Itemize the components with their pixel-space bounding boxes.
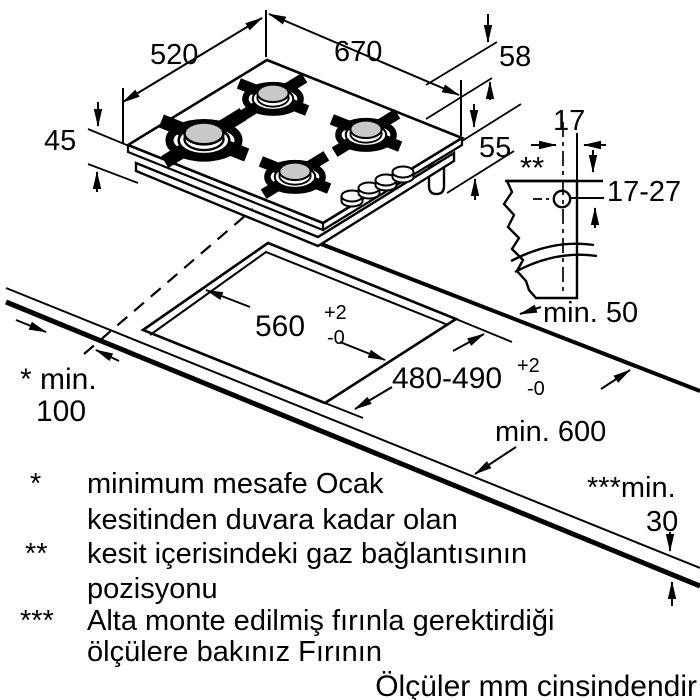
- panel-thickness-label: ***min.: [587, 472, 676, 504]
- worktop-depth-label: min. 600: [495, 416, 606, 448]
- gas-connection-detail: 17 ** 17-27: [504, 105, 681, 298]
- gas-vertical-dimension: 17-27: [607, 176, 681, 208]
- cutout-depth-tol-plus: +2: [517, 355, 540, 377]
- gas-horizontal-dimension: 17: [553, 105, 585, 137]
- hob-isometric-view: [128, 60, 462, 246]
- footnote-1-line1: minimum mesafe Ocak: [87, 468, 384, 500]
- units-note: Ölçüler mm cinsindendir: [375, 670, 697, 700]
- rear-clearance-dimension: min. 50: [520, 297, 638, 329]
- footnote-2-line2: pozisyonu: [87, 573, 218, 605]
- diagram-canvas: 560 +2 -0 480-490 +2 -0 * min. 100 min. …: [0, 0, 700, 700]
- hob-support-height-label: 58: [499, 41, 531, 73]
- installation-diagram: 560 +2 -0 480-490 +2 -0 * min. 100 min. …: [0, 0, 700, 700]
- rear-clearance-label: min. 50: [543, 297, 638, 329]
- gas-marker: **: [520, 150, 544, 185]
- footnote-3-line2: ölçülere bakınız Fırının: [87, 636, 382, 668]
- side-clearance-label: * min.: [20, 363, 97, 396]
- footnote-1-marker: *: [30, 468, 41, 500]
- hob-support-height-dimension: 58: [426, 14, 531, 119]
- gas-inlet-hole: [554, 191, 570, 207]
- hob-depth-label: 520: [150, 39, 198, 71]
- hob-width-label: 670: [334, 36, 382, 68]
- footnote-3-line1: Alta monte edilmiş fırınla gerektirdiği: [87, 605, 554, 637]
- footnote-2-marker: **: [25, 538, 48, 570]
- cutout-depth-tol-minus: -0: [527, 378, 545, 400]
- panel-thickness-dimension: ***min. 30: [587, 472, 678, 606]
- cutout-width-tol-minus: -0: [327, 327, 345, 349]
- cutout-width-value: 560: [255, 310, 305, 343]
- footnote-2-line1: kesit içerisindeki gaz bağlantısının: [87, 538, 527, 570]
- hob-height-label: 45: [44, 125, 76, 157]
- footnote-1-line2: kesitinden duvara kadar olan: [87, 504, 458, 536]
- cutout-depth-value: 480-490: [392, 362, 502, 395]
- panel-thickness-value: 30: [646, 506, 678, 538]
- cutout-width-tol-plus: +2: [324, 302, 347, 324]
- side-clearance-value: 100: [36, 395, 86, 428]
- footnote-3-marker: ***: [20, 605, 54, 637]
- hob-body-height-label: 55: [479, 132, 511, 164]
